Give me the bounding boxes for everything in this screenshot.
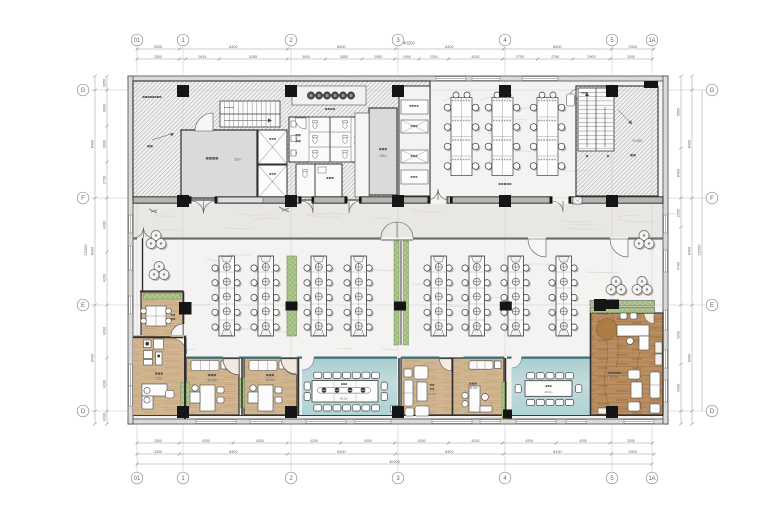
svg-text:3300: 3300: [628, 45, 636, 49]
svg-text:4200: 4200: [103, 380, 107, 388]
svg-text:4200: 4200: [525, 439, 533, 443]
svg-text:2750: 2750: [103, 176, 107, 184]
svg-text:16.6m: 16.6m: [207, 378, 217, 382]
svg-text:3300: 3300: [627, 55, 635, 59]
svg-text:E: E: [81, 303, 85, 309]
svg-text:2750: 2750: [551, 55, 559, 59]
svg-text:40200: 40200: [403, 41, 415, 46]
svg-text:32m: 32m: [234, 158, 241, 162]
svg-text:2900: 2900: [588, 55, 596, 59]
svg-text:8400: 8400: [91, 140, 95, 148]
svg-text:25300: 25300: [697, 244, 702, 256]
svg-text:25m: 25m: [380, 154, 387, 158]
svg-text:29.3m: 29.3m: [544, 390, 553, 394]
svg-text:2550: 2550: [374, 55, 382, 59]
svg-text:4200: 4200: [677, 384, 681, 392]
svg-text:16.6m: 16.6m: [265, 378, 275, 382]
svg-text:2850: 2850: [340, 55, 348, 59]
svg-text:8400: 8400: [553, 45, 561, 49]
svg-text:8400: 8400: [91, 354, 95, 362]
svg-text:4200: 4200: [256, 439, 264, 443]
svg-text:8400: 8400: [229, 45, 237, 49]
svg-text:8400: 8400: [688, 247, 692, 255]
svg-text:1A: 1A: [648, 38, 655, 44]
svg-text:45.5m: 45.5m: [610, 375, 619, 379]
svg-text:D: D: [710, 409, 715, 415]
svg-text:2850: 2850: [103, 79, 107, 87]
svg-text:G: G: [81, 88, 86, 94]
svg-text:4200: 4200: [202, 439, 210, 443]
svg-text:4200: 4200: [418, 439, 426, 443]
svg-text:4200: 4200: [364, 439, 372, 443]
svg-text:2800: 2800: [103, 140, 107, 148]
svg-text:1900: 1900: [403, 55, 411, 59]
svg-text:25300: 25300: [83, 244, 88, 256]
svg-text:2615: 2615: [198, 55, 206, 59]
svg-text:+0.450: +0.450: [632, 139, 643, 143]
svg-text:G: G: [710, 88, 715, 94]
svg-text:19.3m: 19.3m: [428, 392, 437, 396]
svg-text:1A: 1A: [648, 476, 655, 482]
svg-text:2250: 2250: [677, 209, 681, 217]
svg-text:2300: 2300: [430, 55, 438, 59]
svg-text:4200: 4200: [310, 439, 318, 443]
svg-text:2800: 2800: [103, 104, 107, 112]
svg-text:4200: 4200: [471, 439, 479, 443]
svg-text:01: 01: [134, 476, 141, 482]
svg-text:F: F: [710, 196, 714, 202]
svg-text:5650: 5650: [677, 108, 681, 116]
svg-text:8400: 8400: [91, 247, 95, 255]
svg-text:22m: 22m: [156, 377, 163, 381]
svg-text:3300: 3300: [154, 55, 162, 59]
svg-text:4200: 4200: [103, 221, 107, 229]
svg-text:8400: 8400: [677, 169, 681, 177]
svg-text:01: 01: [134, 38, 141, 44]
svg-text:E: E: [710, 303, 714, 309]
svg-text:4200: 4200: [579, 439, 587, 443]
svg-text:4200: 4200: [471, 55, 479, 59]
svg-text:F: F: [81, 196, 85, 202]
svg-text:29.2m: 29.2m: [340, 397, 349, 401]
svg-text:2750: 2750: [516, 55, 524, 59]
svg-text:D: D: [81, 409, 86, 415]
svg-text:3300: 3300: [154, 450, 162, 454]
svg-text:16.3m: 16.3m: [469, 386, 478, 390]
svg-text:4200: 4200: [103, 413, 107, 421]
svg-text:8400: 8400: [688, 140, 692, 148]
svg-text:3300: 3300: [628, 450, 636, 454]
svg-text:8400: 8400: [445, 450, 453, 454]
svg-text:8400: 8400: [688, 354, 692, 362]
svg-text:4200: 4200: [103, 274, 107, 282]
svg-text:8400: 8400: [229, 450, 237, 454]
svg-text:40200: 40200: [389, 460, 400, 464]
svg-text:8400: 8400: [337, 450, 345, 454]
svg-text:3300: 3300: [154, 45, 162, 49]
svg-text:8430: 8430: [553, 450, 561, 454]
svg-text:4200: 4200: [103, 327, 107, 335]
svg-text:4200: 4200: [677, 331, 681, 339]
svg-text:3300: 3300: [627, 439, 635, 443]
svg-text:3300: 3300: [154, 439, 162, 443]
svg-text:8400: 8400: [445, 45, 453, 49]
svg-text:3000: 3000: [302, 55, 310, 59]
svg-text:4700: 4700: [677, 262, 681, 270]
svg-text:8400: 8400: [337, 45, 345, 49]
svg-text:5285: 5285: [249, 55, 257, 59]
